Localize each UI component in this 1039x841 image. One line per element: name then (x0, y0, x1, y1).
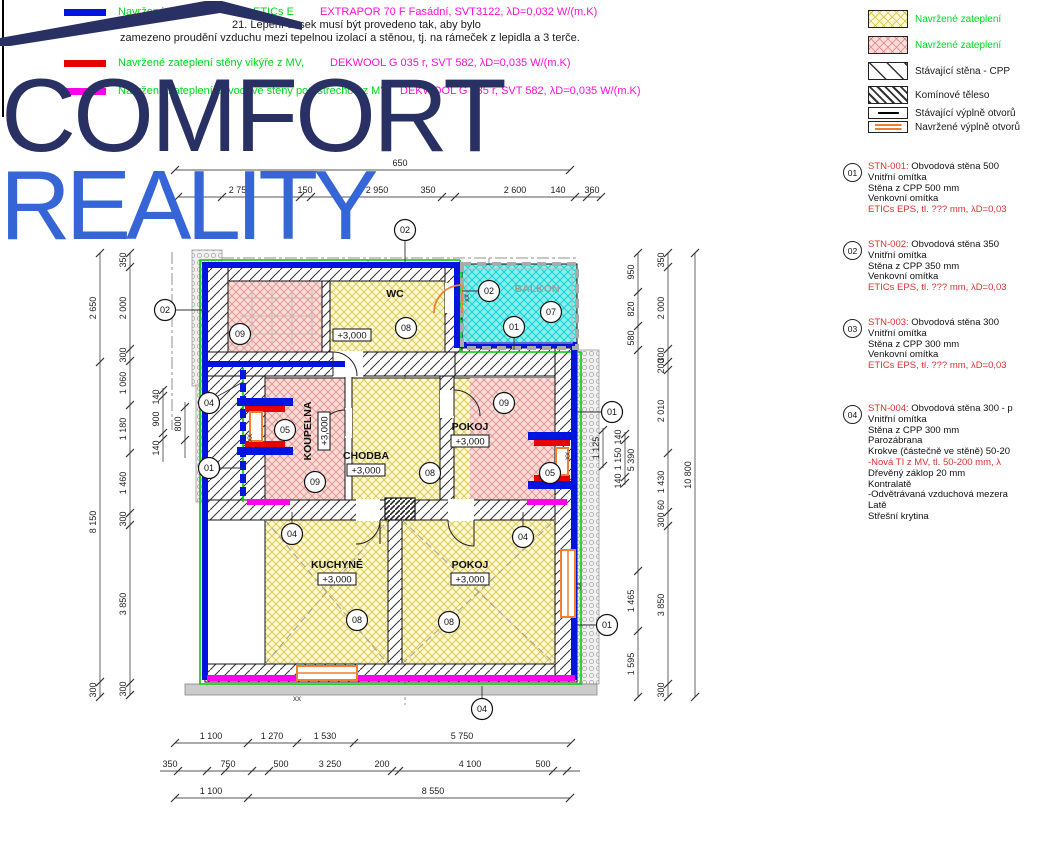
marker-01: 01 (602, 402, 623, 423)
chimney (385, 498, 415, 520)
existing-opening-swatch (868, 107, 908, 119)
marker-08: 08 (347, 610, 368, 631)
legend-item-new-opening: Navržené výplně otvorů (868, 121, 1020, 133)
dim-label: 820 (626, 301, 636, 316)
wall-type-ref-circle: 03 (843, 319, 862, 338)
dim-label: 950 (626, 264, 636, 279)
room-label-pokoj1: POKOJ (452, 421, 489, 433)
dim-label: 1 180 (118, 418, 128, 441)
dim-label: 300 (118, 681, 128, 696)
dim-label: 140 (613, 473, 623, 488)
dim-label: 140 (151, 389, 161, 404)
legend-item-chimney-hatch: Komínové těleso (868, 86, 990, 104)
marker-09: 09 (305, 472, 326, 493)
svg-text:+3,000: +3,000 (455, 437, 484, 448)
dim-label: 350 (656, 252, 666, 267)
svg-text:+3,000: +3,000 (351, 466, 380, 477)
wall-type-line: Střešní krytina (868, 512, 1013, 523)
legend-item-existing-opening: Stávající výplně otvorů (868, 107, 1016, 119)
wall-type-ref-circle: 02 (843, 241, 862, 260)
dim-label: 2 000 (656, 297, 666, 320)
svg-text:01: 01 (602, 620, 612, 630)
svg-text:+3,000: +3,000 (455, 575, 484, 586)
room-label-chodba: CHODBA (343, 450, 389, 462)
wall-type-line: ETICs EPS, tl. ??? mm, λD=0,03 (868, 283, 1007, 294)
marker-04: 04 (513, 527, 534, 548)
wall-type-block-01: STN-001: Obvodová stěna 500Vnitřní omítk… (868, 162, 1007, 216)
legend-item-label: Stávající stěna - CPP (915, 66, 1010, 77)
dim-label: 3 850 (656, 594, 666, 617)
dim-row-ra: 9508205805 3901 4651 595 (626, 249, 642, 701)
svg-text:08: 08 (444, 617, 454, 627)
wall-type-ref-circle: 01 (843, 163, 862, 182)
dim-label: 500 (535, 759, 550, 769)
dim-label: 2 000 (118, 297, 128, 320)
wall-type-line: -Odvětrávaná vzduchová mezera (868, 490, 1013, 501)
marker-08: 08 (439, 612, 460, 633)
dim-label: 5 390 (626, 449, 636, 472)
dim-row-rb: 3502 0003002002 0101 430603003 850300 (656, 249, 672, 701)
dim-label: 300 (656, 682, 666, 697)
dim-row-b1: 1 1001 2701 5305 750 (171, 731, 575, 747)
svg-text:+3,000: +3,000 (337, 331, 366, 342)
dim-row-ls: 140900140800 (151, 386, 189, 462)
wall-type-code: STN-003: (868, 317, 911, 328)
dim-label: 1 100 (200, 786, 223, 796)
dim-label: 1 150 (613, 448, 623, 471)
marker-04: 04 (199, 393, 220, 414)
svg-text:08: 08 (401, 323, 411, 333)
svg-text:01: 01 (204, 463, 214, 473)
legend-item-label: Navržené zateplení (915, 40, 1001, 51)
svg-text:01: 01 (509, 322, 519, 332)
dim-label: 300 (656, 512, 666, 527)
new-opening-swatch (868, 121, 908, 133)
dim-label: 1 125 (591, 437, 601, 460)
room-label-kuchyne: KUCHYNĚ (311, 558, 363, 571)
dim-label: 500 (273, 759, 288, 769)
wall-type-line: Vnitřní omítka (868, 415, 1013, 426)
legend-row1-text-c: EXTRAPOR 70 F Fasádní, SVT3122, λD=0,032… (320, 6, 597, 18)
dim-label: 2 600 (504, 185, 527, 195)
wall-type-code: STN-004: (868, 403, 911, 414)
floorplan-document: { "logo": {"line1": "COMFORT", "line2": … (0, 0, 1039, 841)
svg-text:xx: xx (563, 452, 572, 460)
svg-text:xx: xx (462, 294, 471, 302)
dim-row-lo: 2 6508 150300 (88, 249, 104, 701)
dim-label: 350 (162, 759, 177, 769)
dim-label: 360 (584, 185, 599, 195)
dim-label: 1 100 (200, 731, 223, 741)
dim-label: 300 (118, 511, 128, 526)
wall-type-line: Vnitřní omítka (868, 251, 1007, 262)
marker-01: 01 (199, 458, 220, 479)
dim-label: 140 (151, 440, 161, 455)
marker-09: 09 (494, 393, 515, 414)
logo-text-reality: REALITY (0, 156, 373, 254)
dim-label: 1 060 (118, 372, 128, 395)
marker-05: 05 (275, 420, 296, 441)
room-label-pokoj2: POKOJ (452, 559, 489, 571)
svg-text:05: 05 (280, 425, 290, 435)
red-crosshatch-swatch (868, 36, 908, 54)
svg-text:xx: xx (293, 694, 301, 703)
dim-label: 8 150 (88, 511, 98, 534)
svg-text:04: 04 (518, 532, 528, 542)
dim-row-b2: 3507505003 2502004 100500 (160, 759, 580, 775)
marker-01: 01 (504, 317, 525, 338)
wall-type-title: Obvodová stěna 300 - p (911, 403, 1012, 414)
dim-label: 200 (656, 358, 666, 373)
svg-text:08: 08 (425, 468, 435, 478)
dim-label: 140 (613, 429, 623, 444)
legend-item-label: Navržené zateplení (915, 14, 1001, 25)
svg-text:09: 09 (310, 477, 320, 487)
marker-08: 08 (420, 463, 441, 484)
window-right (561, 550, 575, 617)
legend-item-red-crosshatch: Navržené zateplení (868, 36, 1001, 54)
dim-label: 2 010 (656, 400, 666, 423)
svg-text:05: 05 (545, 468, 555, 478)
svg-text:+3,000: +3,000 (322, 575, 351, 586)
marker-09: 09 (230, 324, 251, 345)
dim-label: 2 650 (88, 297, 98, 320)
room-label-wc: WC (386, 288, 404, 300)
wall-type-line: ETICs EPS, tl. ??? mm, λD=0,03 (868, 205, 1007, 216)
svg-text:04: 04 (204, 398, 214, 408)
dim-label: 300 (88, 682, 98, 697)
dim-label: 200 (374, 759, 389, 769)
dim-row-ro: 10 800 (683, 249, 699, 701)
marker-02: 02 (155, 300, 176, 321)
wall-type-line: ETICs EPS, tl. ??? mm, λD=0,03 (868, 361, 1007, 372)
svg-text:02: 02 (484, 286, 494, 296)
dim-label: 1 460 (118, 472, 128, 495)
dim-label: 1 595 (626, 653, 636, 676)
marker-05: 05 (540, 463, 561, 484)
legend-item-label: Navržené výplně otvorů (915, 122, 1020, 133)
dim-label: 3 250 (319, 759, 342, 769)
dim-row-li: 3502 0003001 0601 1801 4603003 850300 (118, 249, 134, 699)
svg-text:02: 02 (160, 305, 170, 315)
marker-02: 02 (395, 220, 416, 241)
wall-type-line: Dřevěný záklop 20 mm (868, 469, 1013, 480)
dim-label: 300 (118, 347, 128, 362)
dim-label: 1 270 (261, 731, 284, 741)
svg-text:xx: xx (574, 582, 583, 590)
marker-01: 01 (597, 615, 618, 636)
room-label-koupelna: KOUPELNA (302, 401, 314, 460)
legend-item-existing-wall-hatch: Stávající stěna - CPP (868, 62, 1010, 80)
dim-label: 800 (173, 416, 183, 431)
wall-type-block-02: STN-002: Obvodová stěna 350Vnitřní omítk… (868, 240, 1007, 294)
wall-type-line: Vnitřní omítka (868, 173, 1007, 184)
wall-type-block-04: STN-004: Obvodová stěna 300 - pVnitřní o… (868, 404, 1013, 523)
svg-text:04: 04 (477, 704, 487, 714)
svg-text:xx: xx (245, 434, 254, 442)
dim-label: 3 850 (118, 593, 128, 616)
dim-label: 60 (656, 500, 666, 510)
svg-text:02: 02 (400, 225, 410, 235)
dim-label: 900 (151, 411, 161, 426)
wall-type-title: Obvodová stěna 500 (911, 161, 999, 172)
chimney-hatch-swatch (868, 86, 908, 104)
svg-text:+3,000: +3,000 (320, 416, 331, 445)
wall-type-line: Vnitřní omítka (868, 329, 1007, 340)
wall-type-code: STN-001: (868, 161, 911, 172)
dim-label: 10 800 (683, 461, 693, 489)
wall-type-title: Obvodová stěna 300 (911, 317, 999, 328)
legend-item-label: Stávající výplně otvorů (915, 108, 1016, 119)
dim-label: 4 100 (459, 759, 482, 769)
dim-label: 350 (420, 185, 435, 195)
existing-wall-hatch-swatch (868, 62, 908, 80)
logo-roof-icon (0, 0, 330, 60)
window-bottom (297, 666, 357, 680)
dim-label: 8 550 (422, 786, 445, 796)
dim-row-b3: 1 1008 550 (171, 786, 574, 802)
dim-label: 1 530 (314, 731, 337, 741)
dim-label: 580 (626, 330, 636, 345)
dim-label: 5 750 (451, 731, 474, 741)
legend-item-label: Komínové těleso (915, 90, 990, 101)
yellow-crosshatch-swatch (868, 10, 908, 28)
svg-text:09: 09 (235, 329, 245, 339)
wall-type-block-03: STN-003: Obvodová stěna 300Vnitřní omítk… (868, 318, 1007, 372)
dim-label: 140 (550, 185, 565, 195)
room-label-balkon: BALKÓN (515, 282, 560, 295)
svg-text:09: 09 (499, 398, 509, 408)
svg-text:08: 08 (352, 615, 362, 625)
svg-text:01: 01 (607, 407, 617, 417)
dim-label: 750 (220, 759, 235, 769)
marker-02: 02 (479, 281, 500, 302)
legend-item-yellow-crosshatch: Navržené zateplení (868, 10, 1001, 28)
marker-08: 08 (396, 318, 417, 339)
wall-type-code: STN-002: (868, 239, 911, 250)
svg-text:07: 07 (546, 307, 556, 317)
wall-type-title: Obvodová stěna 350 (911, 239, 999, 250)
wall-type-ref-circle: 04 (843, 405, 862, 424)
svg-text:04: 04 (287, 529, 297, 539)
dim-label: 1 430 (656, 471, 666, 494)
dim-label: 1 465 (626, 590, 636, 613)
marker-04: 04 (472, 699, 493, 720)
marker-07: 07 (541, 302, 562, 323)
marker-04: 04 (282, 524, 303, 545)
